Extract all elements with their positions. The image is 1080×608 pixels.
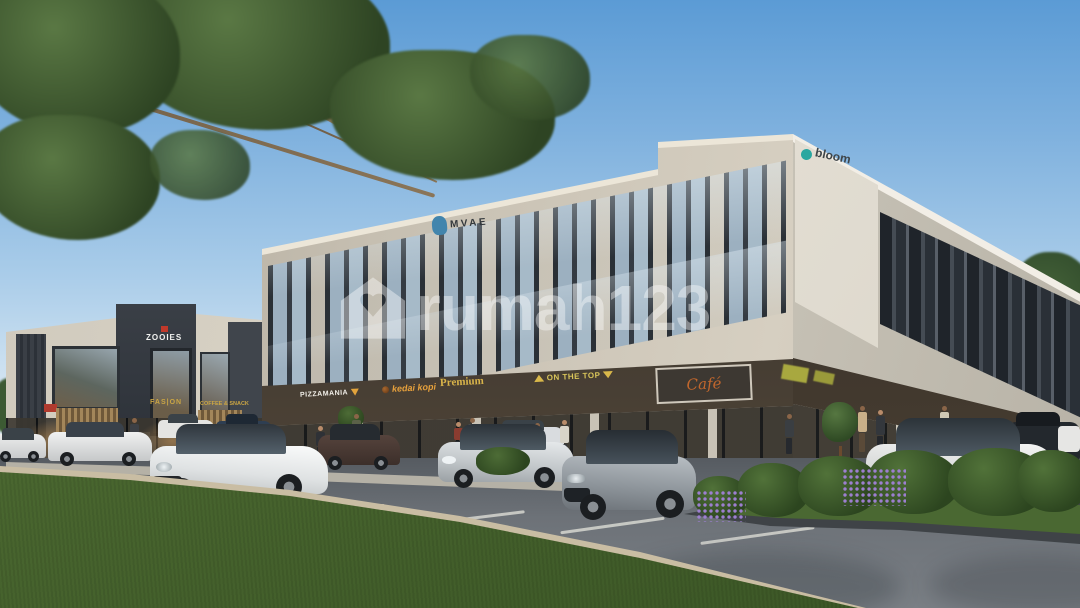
car-brown-hatchback bbox=[318, 422, 400, 470]
sign-fason: FAS|ON bbox=[150, 399, 182, 406]
sign-premium: Premium bbox=[440, 375, 484, 389]
coffee-bean-icon bbox=[382, 386, 389, 393]
shrub bbox=[1018, 450, 1080, 512]
car-gray-sedan bbox=[562, 426, 696, 520]
architectural-rendering: ZOOIES FAS|ON COFFEE & SNACK MVAE PIZZAM… bbox=[0, 0, 1080, 608]
pizza-icon bbox=[351, 388, 359, 395]
triangle-up-icon bbox=[534, 375, 544, 383]
purple-flowers bbox=[696, 490, 746, 522]
car-parked-white-sedan bbox=[48, 420, 152, 466]
sign-coffee-snack: COFFEE & SNACK bbox=[200, 401, 249, 407]
house-icon bbox=[338, 273, 408, 343]
pedestrian bbox=[783, 414, 795, 454]
left-building-window bbox=[52, 346, 120, 410]
sign-cafe: Café bbox=[655, 364, 752, 404]
headlight bbox=[567, 474, 585, 483]
headlight bbox=[156, 462, 172, 472]
headlight bbox=[442, 456, 456, 464]
mvae-elephant-icon bbox=[431, 215, 448, 235]
car-white-right-edge bbox=[1058, 420, 1080, 454]
zooies-red-mark-icon bbox=[161, 326, 168, 332]
watermark-text: rumah123 bbox=[416, 271, 710, 345]
sign-zooies: ZOOIES bbox=[146, 333, 182, 342]
rumah123-watermark: rumah123 bbox=[338, 258, 798, 358]
car-parked-white-partial bbox=[0, 424, 46, 462]
triangle-down-icon bbox=[603, 371, 613, 379]
purple-flowers bbox=[842, 468, 906, 506]
